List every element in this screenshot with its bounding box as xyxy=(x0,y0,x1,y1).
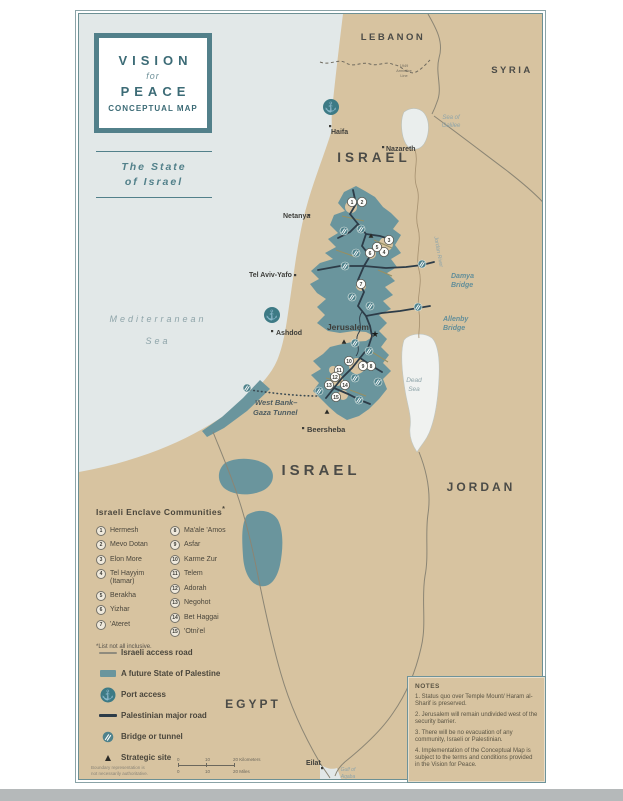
bridge-tunnel-icon xyxy=(340,227,348,235)
legend-icon-cell xyxy=(95,755,121,761)
legend-label: Palestinian major road xyxy=(121,711,207,720)
enclave-legend-item: 8Ma'ale 'Amos xyxy=(170,526,256,536)
enclave-marker: 2 xyxy=(357,197,366,206)
bridge-tunnel-icon xyxy=(357,225,365,233)
scale-label: 10 xyxy=(205,769,210,774)
haifa-port-anchor-icon: ⚓ xyxy=(323,99,339,115)
label-armistice-2: Armistice xyxy=(396,69,412,73)
legend-icon-cell xyxy=(95,652,121,654)
svg-text:8: 8 xyxy=(370,364,373,370)
bridge-tunnel-icon xyxy=(341,262,349,270)
label-gulf-of-aqaba-2: Aqaba xyxy=(340,774,356,779)
port-anchor-icon: ⚓ xyxy=(100,687,116,703)
legend-row-palestine-area: A future State of Palestine xyxy=(95,663,255,684)
bridge-tunnel-icon xyxy=(348,293,356,301)
scale-label: 0 xyxy=(177,757,180,762)
enclave-legend-item: 12Adorah xyxy=(170,584,256,594)
legend-row-bridge: Bridge or tunnel xyxy=(95,726,255,747)
legend-label: Strategic site xyxy=(121,753,171,762)
label-nazareth: Nazareth xyxy=(386,146,416,153)
svg-text:7: 7 xyxy=(360,282,363,288)
subtitle-divider-bottom xyxy=(96,197,212,198)
label-syria: SYRIA xyxy=(491,65,533,76)
label-tunnel-1: West Bank– xyxy=(255,398,297,407)
legend-row-israeli-access-road: Israeli access road xyxy=(95,642,255,663)
svg-text:6: 6 xyxy=(369,251,372,257)
enclave-name: Negohot xyxy=(184,598,210,607)
svg-text:⚓: ⚓ xyxy=(266,309,278,322)
bridge-tunnel-icon xyxy=(102,731,114,743)
enclave-marker: 7 xyxy=(356,279,365,288)
vision-for-peace-map-page: ⚓ ⚓ 123456789101112131415 ★ LEBANON SYRI… xyxy=(0,0,623,801)
enclave-marker: 15 xyxy=(331,392,340,401)
enclave-name: Telem xyxy=(184,569,203,578)
enclave-name: Ma'ale 'Amos xyxy=(184,526,226,535)
enclave-name: 'Ateret xyxy=(110,620,130,629)
svg-text:14: 14 xyxy=(342,383,348,389)
scale-bar: 01020 Kilometers01020 Miles xyxy=(178,757,258,779)
label-mediterranean-1: Mediterranean xyxy=(109,314,206,324)
label-jerusalem: Jerusalem xyxy=(327,322,369,332)
label-tel-aviv-yafo: Tel Aviv-Yafo xyxy=(249,272,292,279)
bridge-tunnel-icon xyxy=(366,302,374,310)
enclave-name: Tel Hayyim (Itamar) xyxy=(110,569,170,586)
enclave-legend-title: Israeli Enclave Communities* xyxy=(96,505,276,517)
bridge-tunnel-icon xyxy=(355,396,363,404)
ashdod-port-anchor-icon: ⚓ xyxy=(264,307,280,323)
enclave-number-badge: 12 xyxy=(170,584,180,594)
svg-text:2: 2 xyxy=(361,200,364,206)
enclave-number-badge: 13 xyxy=(170,598,180,608)
enclave-number-badge: 8 xyxy=(170,526,180,536)
palestinian-road-swatch xyxy=(99,714,117,717)
scale-tick xyxy=(206,763,207,767)
svg-text:⚓: ⚓ xyxy=(102,688,114,701)
legend-label: Bridge or tunnel xyxy=(121,732,183,741)
label-damya-bridge-1: Damya xyxy=(451,273,474,280)
enclave-marker: 12 xyxy=(330,372,339,381)
label-allenby-bridge-2: Bridge xyxy=(443,325,465,332)
legend-icon-cell: ⚓ xyxy=(95,687,121,703)
enclave-marker: 9 xyxy=(358,361,367,370)
title-for: for xyxy=(146,71,160,81)
enclave-communities-legend: Israeli Enclave Communities* 1Hermesh2Me… xyxy=(96,505,276,650)
label-lebanon: LEBANON xyxy=(361,32,425,43)
enclave-number-badge: 2 xyxy=(96,540,106,550)
enclave-legend-item: 11Telem xyxy=(170,569,256,579)
label-gulf-of-aqaba-1: Gulf of xyxy=(341,767,356,773)
map-symbol-legend: Israeli access roadA future State of Pal… xyxy=(95,642,255,768)
enclave-number-badge: 3 xyxy=(96,555,106,565)
scale-label: 20 Kilometers xyxy=(233,757,261,762)
label-tunnel-2: Gaza Tunnel xyxy=(253,408,298,417)
bridge-tunnel-icon xyxy=(315,387,323,395)
enclave-number-badge: 10 xyxy=(170,555,180,565)
enclave-name: Elon More xyxy=(110,555,142,564)
enclave-name: Hermesh xyxy=(110,526,138,535)
enclave-legend-item: 7'Ateret xyxy=(96,620,170,630)
enclave-marker: 1 xyxy=(347,197,356,206)
enclave-number-badge: 7 xyxy=(96,620,106,630)
note-item: 1. Status quo over Temple Mount/ Haram a… xyxy=(415,694,538,708)
legend-icon-cell xyxy=(95,714,121,717)
bridge-tunnel-icon xyxy=(374,378,382,386)
enclave-legend-item: 1Hermesh xyxy=(96,526,170,536)
bottom-gray-band xyxy=(0,789,623,801)
enclave-marker: 6 xyxy=(365,248,374,257)
notes-items: 1. Status quo over Temple Mount/ Haram a… xyxy=(415,694,538,769)
strategic-site-icon xyxy=(105,755,111,761)
label-israel-south: ISRAEL xyxy=(281,462,360,479)
label-sea-of-galilee-2: Galilee xyxy=(442,123,461,129)
label-mediterranean-2: Sea xyxy=(145,336,170,346)
label-eilat: Eilat xyxy=(306,760,321,767)
svg-text:15: 15 xyxy=(333,395,339,401)
label-armistice-1: 1949 xyxy=(400,64,408,68)
enclave-legend-item: 4Tel Hayyim (Itamar) xyxy=(96,569,170,586)
bridge-tunnel-icon xyxy=(414,303,422,311)
label-netanya: Netanya xyxy=(283,213,310,220)
israeli-access-road-swatch xyxy=(99,652,117,654)
svg-text:9: 9 xyxy=(362,364,365,370)
enclave-legend-item: 10Karme Zur xyxy=(170,555,256,565)
note-item: 4. Implementation of the Conceptual Map … xyxy=(415,748,538,770)
enclave-number-badge: 5 xyxy=(96,591,106,601)
enclave-marker: 3 xyxy=(384,235,393,244)
title-peace: PEACE xyxy=(116,84,191,99)
label-dead-sea-1: Dead xyxy=(406,377,422,384)
enclave-legend-columns: 1Hermesh2Mevo Dotan3Elon More4Tel Hayyim… xyxy=(96,526,276,638)
label-beersheba: Beersheba xyxy=(307,425,346,434)
enclave-number-badge: 1 xyxy=(96,526,106,536)
subtitle-divider-top xyxy=(96,151,212,152)
enclave-marker: 13 xyxy=(324,380,333,389)
svg-text:12: 12 xyxy=(332,375,338,381)
boundary-disclaimer-line-2: not necessarily authoritative. xyxy=(91,771,181,777)
enclave-name: Karme Zur xyxy=(184,555,217,564)
enclave-legend-item: 15'Otni'el xyxy=(170,627,256,637)
bridge-tunnel-icon xyxy=(418,260,426,268)
svg-text:1: 1 xyxy=(351,200,354,206)
scale-label: 10 xyxy=(205,757,210,762)
enclave-name: Asfar xyxy=(184,540,200,549)
label-sea-of-galilee-1: Sea of xyxy=(442,115,461,121)
palestine-area-swatch xyxy=(100,670,116,677)
scale-tick xyxy=(234,763,235,767)
negev-area-north-shape xyxy=(219,459,273,495)
subtitle-block: The State of Israel xyxy=(96,151,212,198)
enclave-number-badge: 14 xyxy=(170,613,180,623)
label-damya-bridge-2: Bridge xyxy=(451,282,473,289)
svg-text:13: 13 xyxy=(326,383,332,389)
sea-of-galilee-shape xyxy=(402,109,429,150)
legend-icon-cell xyxy=(95,670,121,677)
enclave-col-2: 8Ma'ale 'Amos9Asfar10Karme Zur11Telem12A… xyxy=(170,526,256,638)
svg-text:4: 4 xyxy=(383,250,386,256)
bridge-tunnel-icon xyxy=(351,339,359,347)
notes-title: NOTES xyxy=(415,683,538,690)
svg-text:3: 3 xyxy=(388,238,391,244)
enclave-legend-item: 13Negohot xyxy=(170,598,256,608)
label-armistice-3: Line xyxy=(400,74,407,78)
label-dead-sea-2: Sea xyxy=(408,386,420,393)
notes-box: NOTES 1. Status quo over Temple Mount/ H… xyxy=(407,676,546,783)
enclave-name: Berakha xyxy=(110,591,136,600)
title-vision: VISION xyxy=(113,53,192,68)
enclave-legend-item: 14Bet Haggai xyxy=(170,613,256,623)
legend-label: Israeli access road xyxy=(121,648,193,657)
enclave-col-1: 1Hermesh2Mevo Dotan3Elon More4Tel Hayyim… xyxy=(96,526,170,638)
legend-label: A future State of Palestine xyxy=(121,669,220,678)
title-conceptual-map: CONCEPTUAL MAP xyxy=(108,104,197,113)
enclave-number-badge: 6 xyxy=(96,605,106,615)
label-ashdod: Ashdod xyxy=(276,330,302,337)
enclave-legend-item: 2Mevo Dotan xyxy=(96,540,170,550)
bridge-tunnel-icon xyxy=(352,249,360,257)
enclave-legend-item: 9Asfar xyxy=(170,540,256,550)
label-haifa: Haifa xyxy=(331,129,348,136)
enclave-number-badge: 11 xyxy=(170,569,180,579)
bridge-tunnel-icon xyxy=(351,374,359,382)
enclave-name: Bet Haggai xyxy=(184,613,219,622)
scale-label: 20 Miles xyxy=(233,769,250,774)
boundary-disclaimer: Boundary representation is not necessari… xyxy=(91,765,181,776)
legend-label: Port access xyxy=(121,690,166,699)
enclave-marker: 14 xyxy=(340,380,349,389)
subtitle-line-2: of Israel xyxy=(96,175,212,190)
svg-text:10: 10 xyxy=(346,359,352,365)
legend-row-palestinian-road: Palestinian major road xyxy=(95,705,255,726)
legend-row-port: ⚓Port access xyxy=(95,684,255,705)
enclave-legend-item: 6Yizhar xyxy=(96,605,170,615)
enclave-name: 'Otni'el xyxy=(184,627,205,636)
note-item: 3. There will be no evacuation of any co… xyxy=(415,730,538,744)
svg-text:5: 5 xyxy=(376,245,379,251)
title-card: VISION for PEACE CONCEPTUAL MAP xyxy=(94,33,212,133)
enclave-legend-footnote-mark: * xyxy=(222,505,225,513)
legend-icon-cell xyxy=(95,731,121,743)
enclave-name: Yizhar xyxy=(110,605,130,614)
label-allenby-bridge-1: Allenby xyxy=(442,316,469,323)
jerusalem-star-icon: ★ xyxy=(371,329,379,339)
enclave-marker: 10 xyxy=(344,356,353,365)
note-item: 2. Jerusalem will remain undivided west … xyxy=(415,712,538,726)
enclave-number-badge: 4 xyxy=(96,569,106,579)
enclave-legend-title-text: Israeli Enclave Communities xyxy=(96,507,222,517)
svg-text:⚓: ⚓ xyxy=(325,101,337,114)
bridge-tunnel-icon xyxy=(365,347,373,355)
enclave-name: Adorah xyxy=(184,584,207,593)
enclave-legend-item: 5Berakha xyxy=(96,591,170,601)
enclave-number-badge: 15 xyxy=(170,627,180,637)
subtitle-line-1: The State xyxy=(96,160,212,175)
bridge-tunnel-icon xyxy=(243,384,251,392)
enclave-number-badge: 9 xyxy=(170,540,180,550)
enclave-name: Mevo Dotan xyxy=(110,540,148,549)
enclave-legend-item: 3Elon More xyxy=(96,555,170,565)
label-jordan: JORDAN xyxy=(447,480,516,494)
